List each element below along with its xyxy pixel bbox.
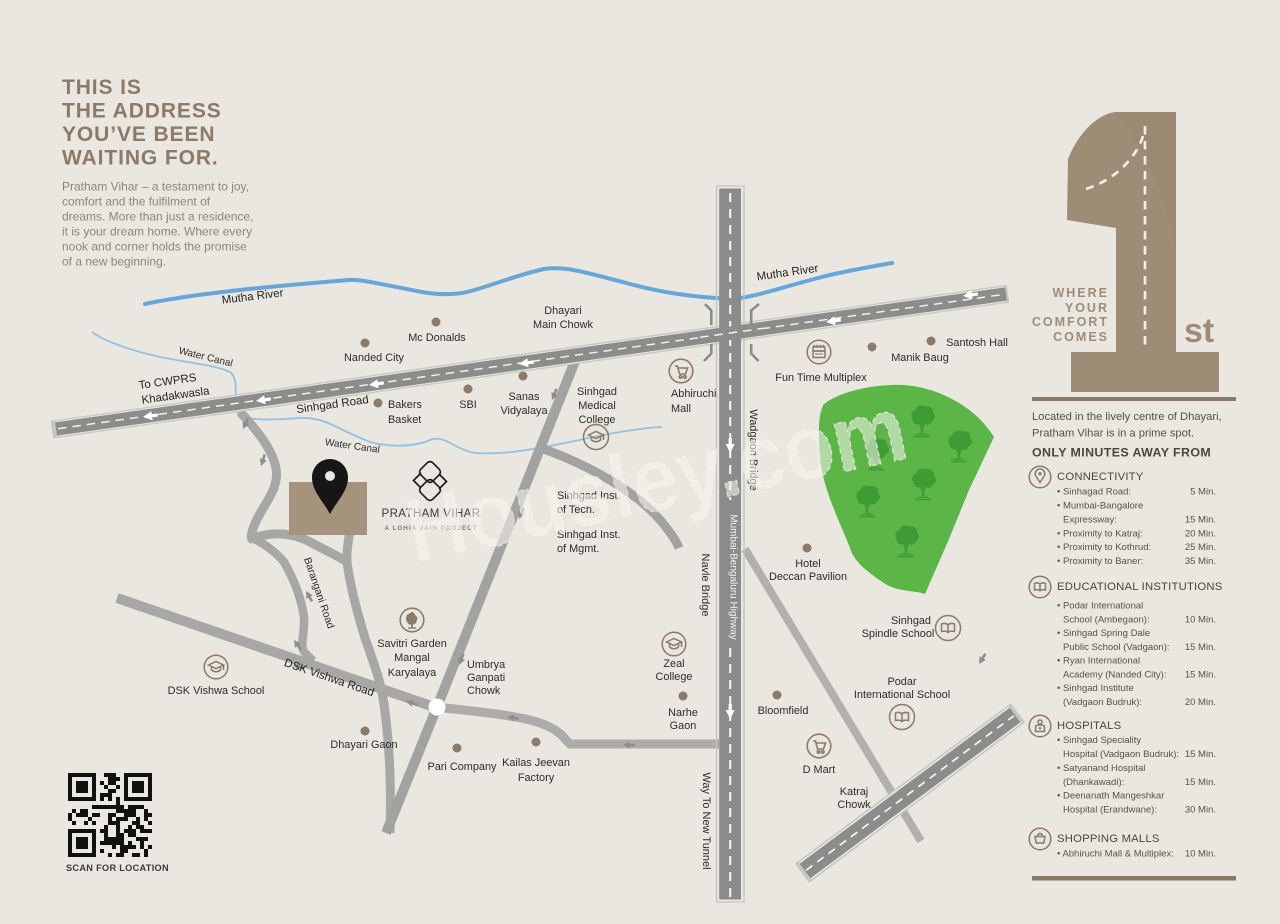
svg-text:Sanas: Sanas — [509, 391, 540, 403]
svg-text:DSK Vishwa School: DSK Vishwa School — [168, 685, 265, 697]
svg-text:College: College — [656, 671, 693, 683]
svg-text:School (Ambegaon):: School (Ambegaon): — [1063, 615, 1150, 626]
svg-text:Kailas Jeevan: Kailas Jeevan — [502, 757, 570, 769]
svg-text:College: College — [579, 414, 616, 426]
svg-text:5 Min.: 5 Min. — [1190, 487, 1216, 498]
svg-text:Gaon: Gaon — [670, 720, 697, 732]
svg-text:• Sinhgad Spring Dale: • Sinhgad Spring Dale — [1057, 628, 1150, 639]
svg-text:15 Min.: 15 Min. — [1185, 777, 1216, 788]
svg-text:• Proximity to Kothrud:: • Proximity to Kothrud: — [1057, 542, 1151, 553]
svg-text:COMES: COMES — [1053, 330, 1109, 344]
svg-text:COMFORT: COMFORT — [1032, 315, 1109, 329]
svg-text:YOU’VE BEEN: YOU’VE BEEN — [62, 123, 215, 146]
svg-text:Expressway:: Expressway: — [1063, 515, 1117, 526]
svg-text:• Deenanath Mangeshkar: • Deenanath Mangeshkar — [1057, 791, 1164, 802]
svg-text:Dhayari Gaon: Dhayari Gaon — [330, 739, 397, 751]
svg-text:Way To New Tunnel: Way To New Tunnel — [700, 772, 712, 869]
svg-text:Pari Company: Pari Company — [427, 761, 497, 773]
svg-text:10 Min.: 10 Min. — [1185, 849, 1216, 860]
svg-text:Pratham Vihar is in a prime sp: Pratham Vihar is in a prime spot. — [1032, 428, 1194, 440]
svg-text:Sinhgad: Sinhgad — [577, 386, 617, 398]
svg-text:Located in the lively centre o: Located in the lively centre of Dhayari, — [1032, 411, 1222, 423]
svg-text:comfort and the fulfilment of: comfort and the fulfilment of — [62, 195, 211, 209]
svg-text:Ganpati: Ganpati — [467, 672, 505, 684]
svg-text:Public School (Vadgaon):: Public School (Vadgaon): — [1063, 642, 1170, 653]
svg-text:EDUCATIONAL INSTITUTIONS: EDUCATIONAL INSTITUTIONS — [1057, 581, 1223, 593]
svg-text:Fun Time Multiplex: Fun Time Multiplex — [775, 372, 867, 384]
svg-text:Navle Bridge: Navle Bridge — [699, 554, 711, 617]
svg-text:Manik Baug: Manik Baug — [891, 352, 949, 364]
svg-text:Deccan Pavilion: Deccan Pavilion — [769, 571, 847, 583]
svg-text:• Mumbai-Bangalore: • Mumbai-Bangalore — [1057, 501, 1143, 512]
svg-text:THIS IS: THIS IS — [62, 76, 142, 99]
svg-text:Narhe: Narhe — [668, 707, 698, 719]
svg-text:THE ADDRESS: THE ADDRESS — [62, 100, 222, 123]
svg-text:Zeal: Zeal — [663, 658, 684, 670]
svg-text:ONLY MINUTES AWAY FROM: ONLY MINUTES AWAY FROM — [1032, 446, 1211, 460]
svg-text:Abhiruchi: Abhiruchi — [671, 388, 716, 400]
svg-text:Chowk: Chowk — [837, 799, 871, 811]
svg-text:• Proximity to Baner:: • Proximity to Baner: — [1057, 556, 1143, 567]
svg-text:Santosh Hall: Santosh Hall — [946, 337, 1008, 349]
svg-text:SHOPPING MALLS: SHOPPING MALLS — [1057, 833, 1160, 845]
svg-text:International School: International School — [854, 689, 950, 701]
svg-text:Bloomfield: Bloomfield — [758, 705, 809, 717]
svg-text:of a new beginning.: of a new beginning. — [62, 255, 166, 269]
svg-text:• Abhiruchi Mall & Multiplex:: • Abhiruchi Mall & Multiplex: — [1057, 849, 1174, 860]
svg-text:35 Min.: 35 Min. — [1185, 556, 1216, 567]
svg-text:WHERE: WHERE — [1052, 286, 1109, 300]
svg-text:• Sinhagad Road:: • Sinhagad Road: — [1057, 487, 1131, 498]
svg-text:Medical: Medical — [578, 400, 616, 412]
svg-text:SCAN FOR LOCATION: SCAN FOR LOCATION — [66, 863, 169, 873]
svg-text:SBI: SBI — [459, 399, 477, 411]
svg-text:st: st — [1184, 312, 1214, 350]
svg-text:25 Min.: 25 Min. — [1185, 542, 1216, 553]
svg-text:Spindle School: Spindle School — [862, 628, 935, 640]
svg-text:Katraj: Katraj — [840, 786, 868, 798]
svg-text:20 Min.: 20 Min. — [1185, 529, 1216, 540]
svg-text:Podar: Podar — [887, 676, 916, 688]
svg-text:Nanded City: Nanded City — [344, 352, 404, 364]
svg-text:Mall: Mall — [671, 403, 691, 415]
svg-text:15 Min.: 15 Min. — [1185, 670, 1216, 681]
svg-text:Dhayari: Dhayari — [544, 305, 582, 317]
svg-text:20 Min.: 20 Min. — [1185, 697, 1216, 708]
svg-text:Pratham Vihar – a testament to: Pratham Vihar – a testament to joy, — [62, 180, 249, 194]
svg-text:30 Min.: 30 Min. — [1185, 805, 1216, 816]
svg-text:Mangal: Mangal — [394, 652, 430, 664]
svg-text:10 Min.: 10 Min. — [1185, 615, 1216, 626]
svg-text:Vidyalaya: Vidyalaya — [500, 405, 548, 417]
svg-text:Factory: Factory — [518, 772, 555, 784]
svg-text:dreams. More than just a resid: dreams. More than just a residence, — [62, 210, 253, 224]
svg-text:it is your dream home. Where e: it is your dream home. Where every — [62, 225, 252, 239]
svg-text:nook and corner holds the prom: nook and corner holds the promise — [62, 240, 247, 254]
svg-text:• Satyanand Hospital: • Satyanand Hospital — [1057, 763, 1145, 774]
svg-text:• Sinhgad Speciality: • Sinhgad Speciality — [1057, 735, 1141, 746]
svg-text:Hotel: Hotel — [795, 558, 820, 570]
svg-text:Hospital (Erandwane):: Hospital (Erandwane): — [1063, 805, 1157, 816]
svg-text:HOSPITALS: HOSPITALS — [1057, 720, 1122, 732]
svg-text:CONNECTIVITY: CONNECTIVITY — [1057, 471, 1144, 483]
svg-text:YOUR: YOUR — [1065, 301, 1109, 315]
svg-text:Umbrya: Umbrya — [467, 659, 506, 671]
svg-text:Chowk: Chowk — [467, 685, 501, 697]
svg-text:Hospital (Vadgaon Budruk):: Hospital (Vadgaon Budruk): — [1063, 749, 1179, 760]
svg-text:• Ryan International: • Ryan International — [1057, 656, 1140, 667]
svg-text:Mumbai-Bengaluru Highway: Mumbai-Bengaluru Highway — [728, 514, 739, 640]
svg-text:Sinhgad: Sinhgad — [891, 615, 931, 627]
svg-text:Savitri Garden: Savitri Garden — [377, 638, 447, 650]
svg-text:(Dhankawadi):: (Dhankawadi): — [1063, 777, 1124, 788]
svg-text:Mc Donalds: Mc Donalds — [408, 332, 466, 344]
svg-text:• Proximity to Katraj:: • Proximity to Katraj: — [1057, 529, 1143, 540]
svg-text:(Vadgaon Budruk):: (Vadgaon Budruk): — [1063, 697, 1142, 708]
svg-text:• Sinhgad Institute: • Sinhgad Institute — [1057, 683, 1134, 694]
svg-text:Academy (Nanded City):: Academy (Nanded City): — [1063, 670, 1166, 681]
svg-text:• Podar International: • Podar International — [1057, 601, 1143, 612]
svg-text:WAITING FOR.: WAITING FOR. — [62, 147, 219, 170]
svg-text:D Mart: D Mart — [803, 764, 836, 776]
svg-text:15 Min.: 15 Min. — [1185, 749, 1216, 760]
svg-text:15 Min.: 15 Min. — [1185, 642, 1216, 653]
svg-text:Karyalaya: Karyalaya — [388, 667, 437, 679]
svg-text:Main Chowk: Main Chowk — [533, 319, 593, 331]
svg-text:15 Min.: 15 Min. — [1185, 515, 1216, 526]
